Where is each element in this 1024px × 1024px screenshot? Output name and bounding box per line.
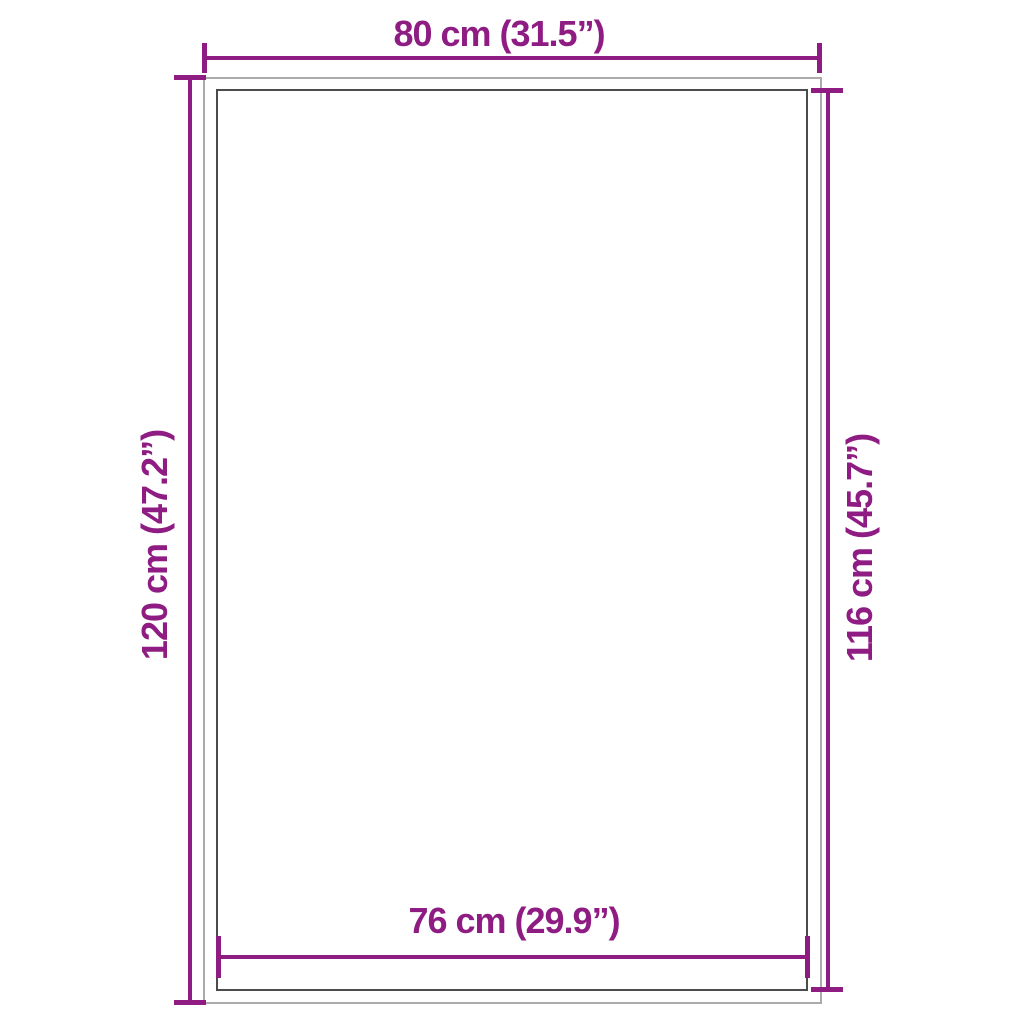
right-dimension-tick-top bbox=[811, 88, 843, 93]
top-dimension-tick-right bbox=[817, 43, 822, 73]
right-dimension-label: 116 cm (45.7”) bbox=[842, 434, 878, 662]
right-dimension-tick-bottom bbox=[811, 987, 843, 992]
right-dimension-line bbox=[826, 90, 830, 990]
left-dimension-tick-bottom bbox=[174, 1000, 206, 1005]
bottom-dimension-line bbox=[218, 955, 808, 959]
top-dimension-line bbox=[204, 56, 819, 60]
left-dimension-line bbox=[188, 77, 192, 1003]
bottom-dimension-label: 76 cm (29.9”) bbox=[408, 903, 619, 939]
top-dimension-tick-left bbox=[202, 43, 207, 73]
top-dimension-label: 80 cm (31.5”) bbox=[393, 16, 604, 52]
bottom-dimension-tick-right bbox=[805, 936, 810, 978]
left-dimension-label: 120 cm (47.2”) bbox=[137, 430, 173, 660]
bottom-dimension-tick-left bbox=[216, 936, 221, 978]
inner-outline bbox=[216, 89, 808, 991]
left-dimension-tick-top bbox=[174, 75, 206, 80]
dimension-diagram: 80 cm (31.5”) 120 cm (47.2”) 116 cm (45.… bbox=[0, 0, 1024, 1024]
